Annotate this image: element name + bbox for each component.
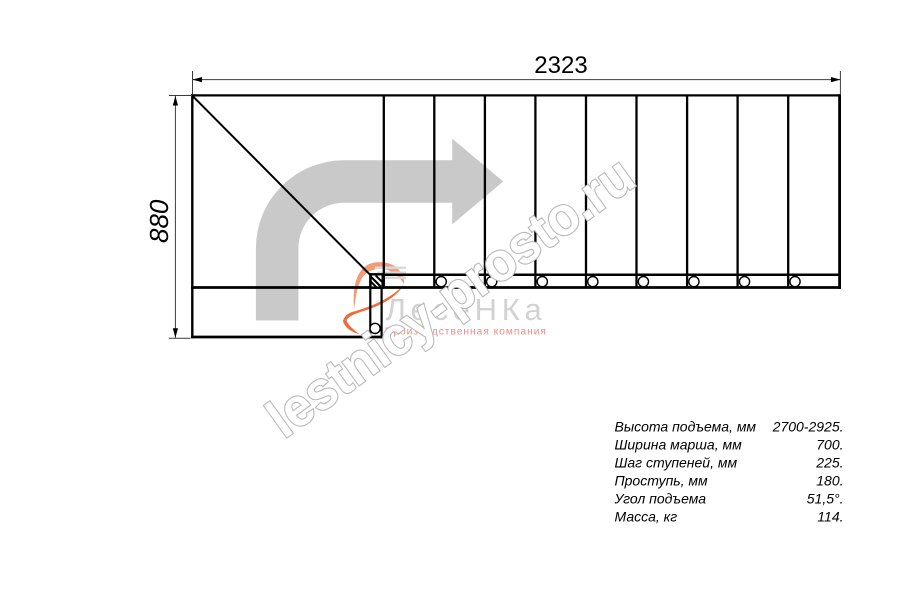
svg-text:Высота подъема, мм: Высота подъема, мм: [615, 419, 757, 435]
svg-text:2700-2925.: 2700-2925.: [772, 419, 844, 435]
svg-text:Угол подъема: Угол подъема: [614, 491, 707, 507]
svg-text:51,5°.: 51,5°.: [807, 491, 844, 507]
svg-text:700.: 700.: [816, 437, 843, 453]
svg-text:225.: 225.: [815, 455, 843, 471]
svg-text:2323: 2323: [534, 52, 587, 79]
svg-text:Шаг ступеней, мм: Шаг ступеней, мм: [615, 455, 738, 471]
svg-text:880: 880: [144, 199, 174, 243]
svg-text:114.: 114.: [817, 509, 843, 525]
svg-text:180.: 180.: [816, 473, 843, 489]
svg-text:Проступь, мм: Проступь, мм: [615, 473, 709, 489]
svg-text:Ширина марша, мм: Ширина марша, мм: [615, 437, 743, 453]
svg-text:Масса, кг: Масса, кг: [615, 509, 678, 525]
